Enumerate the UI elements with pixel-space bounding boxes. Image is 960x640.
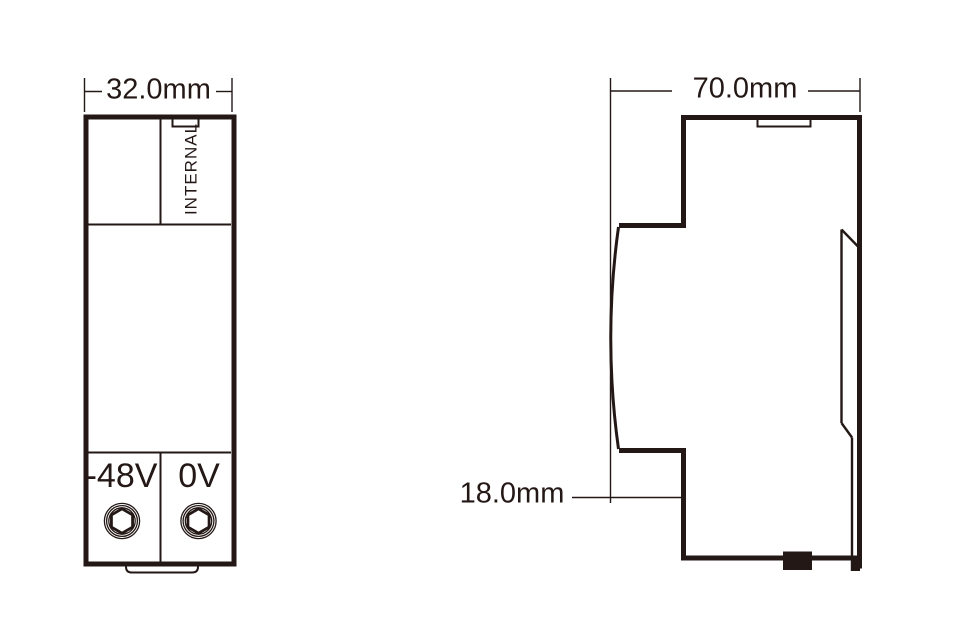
- terminal-zero-label: 0V: [178, 459, 220, 493]
- terminal-negative-label: -48V: [86, 459, 158, 493]
- din-clip-lever-tip: [851, 559, 860, 571]
- side-depth-dimension-label: 70.0mm: [693, 75, 798, 104]
- front-width-dimension-label: 32.0mm: [106, 76, 211, 105]
- din-clip-lever-icon: [842, 230, 859, 572]
- side-view-outline: [619, 118, 860, 569]
- side-view-top-slot: [758, 119, 811, 127]
- technical-drawing-page: 32.0mm INTERNAL -48V 0V 70.0mm 18.0mm: [0, 0, 960, 640]
- rail-width-dimension-label: 18.0mm: [460, 480, 565, 509]
- side-view-front-curve: [611, 227, 619, 449]
- internal-panel-label: INTERNAL: [183, 123, 200, 215]
- din-rail-stop-block: [783, 552, 812, 571]
- side-depth-dimension-line: [611, 78, 861, 503]
